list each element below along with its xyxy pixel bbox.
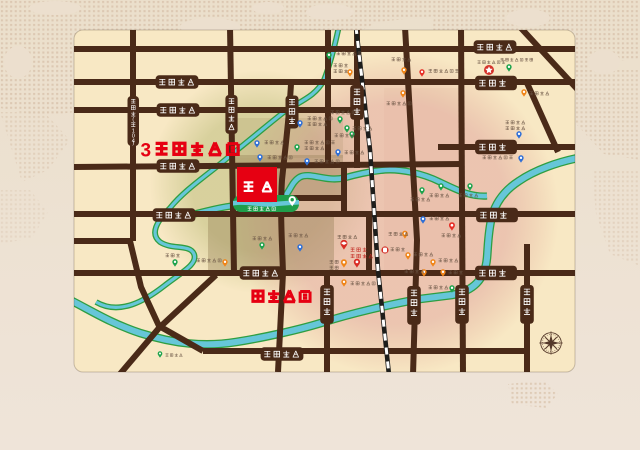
svg-text:3: 3: [141, 141, 152, 162]
svg-text:(: (: [132, 117, 134, 123]
svg-text:): ): [132, 141, 134, 147]
